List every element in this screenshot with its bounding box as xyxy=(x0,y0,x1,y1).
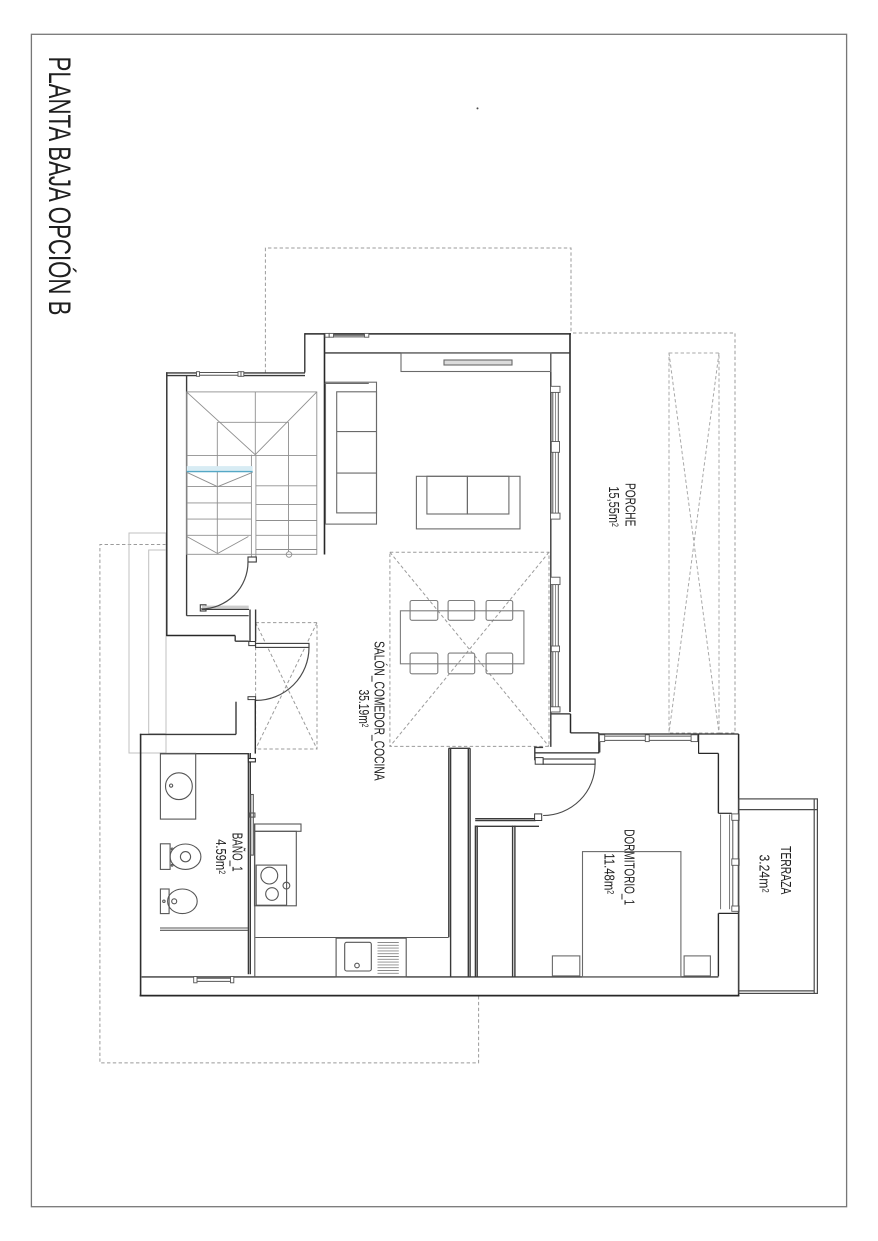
svg-text:TERRAZA: TERRAZA xyxy=(777,846,793,895)
svg-text:DORMITORIO_1: DORMITORIO_1 xyxy=(621,829,637,905)
svg-text:35.19m2: 35.19m2 xyxy=(355,690,371,728)
svg-text:BAÑO_1: BAÑO_1 xyxy=(229,833,246,872)
svg-text:15,55m2: 15,55m2 xyxy=(605,486,621,527)
svg-text:4.59m2: 4.59m2 xyxy=(212,839,228,874)
svg-text:SALÓN_COMEDOR_COCINA: SALÓN_COMEDOR_COCINA xyxy=(370,641,387,781)
svg-text:11.48m2: 11.48m2 xyxy=(601,853,617,894)
svg-text:3.24m2: 3.24m2 xyxy=(756,855,772,893)
svg-text:PLANTA BAJA OPCIÓN B: PLANTA BAJA OPCIÓN B xyxy=(42,57,78,316)
svg-text:PORCHE: PORCHE xyxy=(621,483,637,527)
